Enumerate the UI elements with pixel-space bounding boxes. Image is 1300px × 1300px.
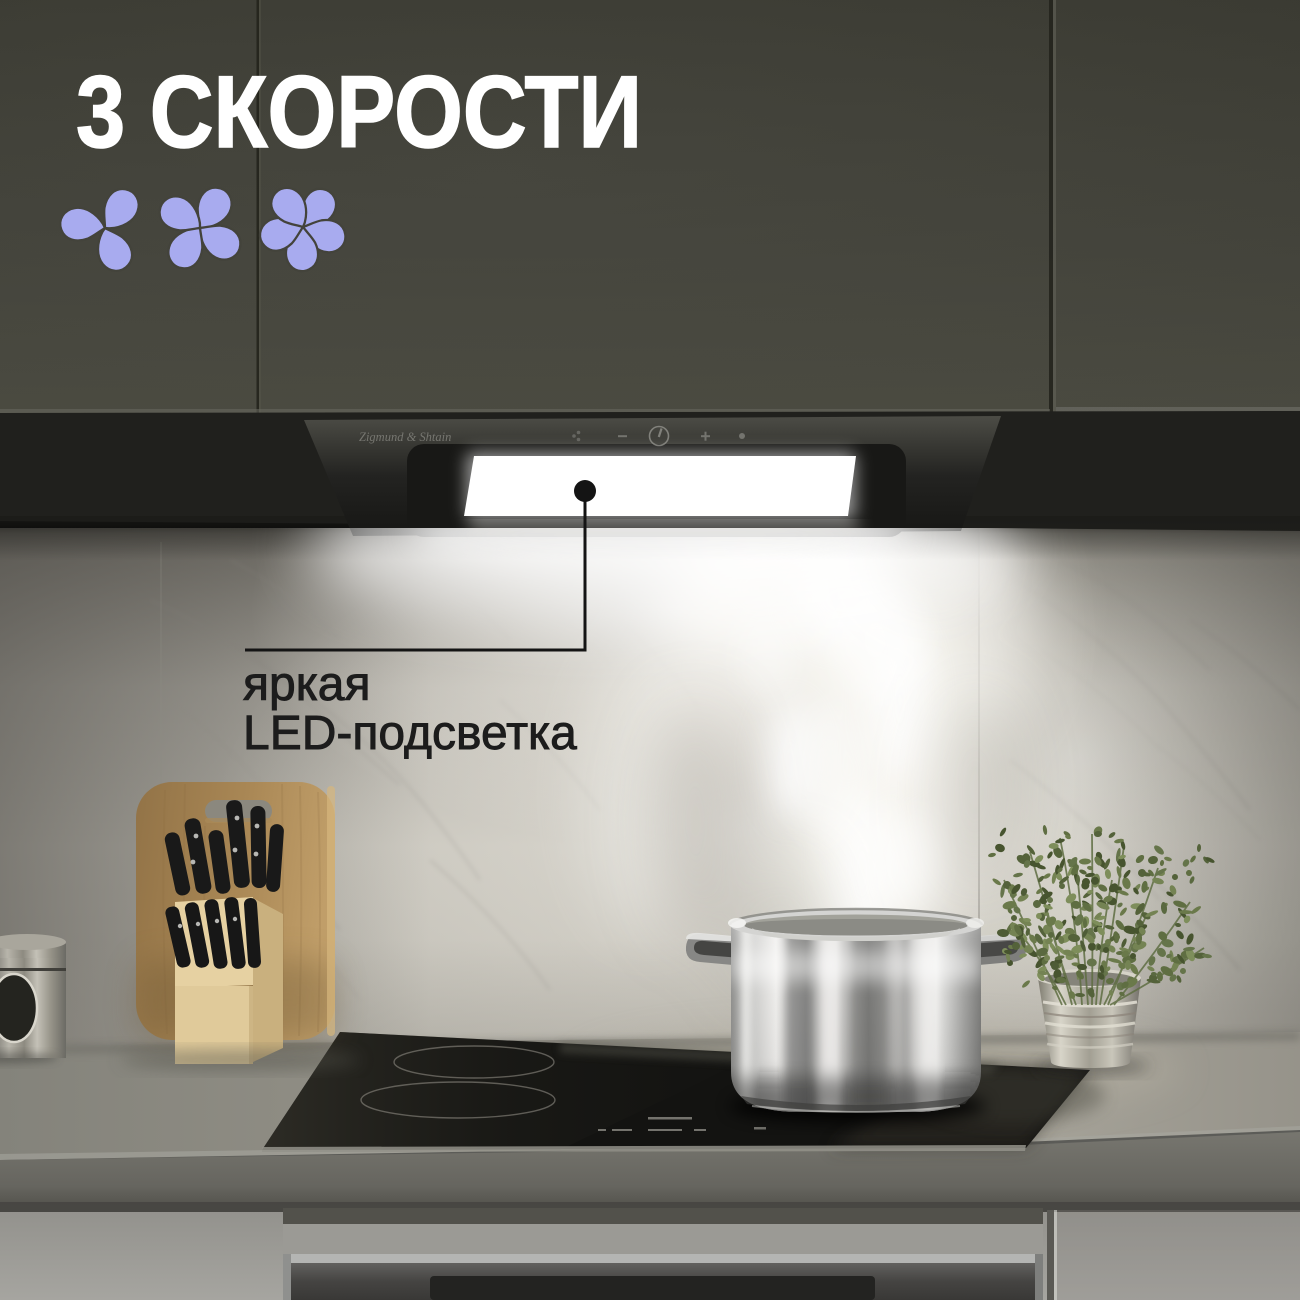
svg-text:Zigmund & Shtain: Zigmund & Shtain [359,430,451,444]
svg-text:3 СКОРОСТИ: 3 СКОРОСТИ [76,55,642,169]
svg-text:LED-подсветка: LED-подсветка [243,707,577,760]
svg-text:яркая: яркая [243,658,370,711]
